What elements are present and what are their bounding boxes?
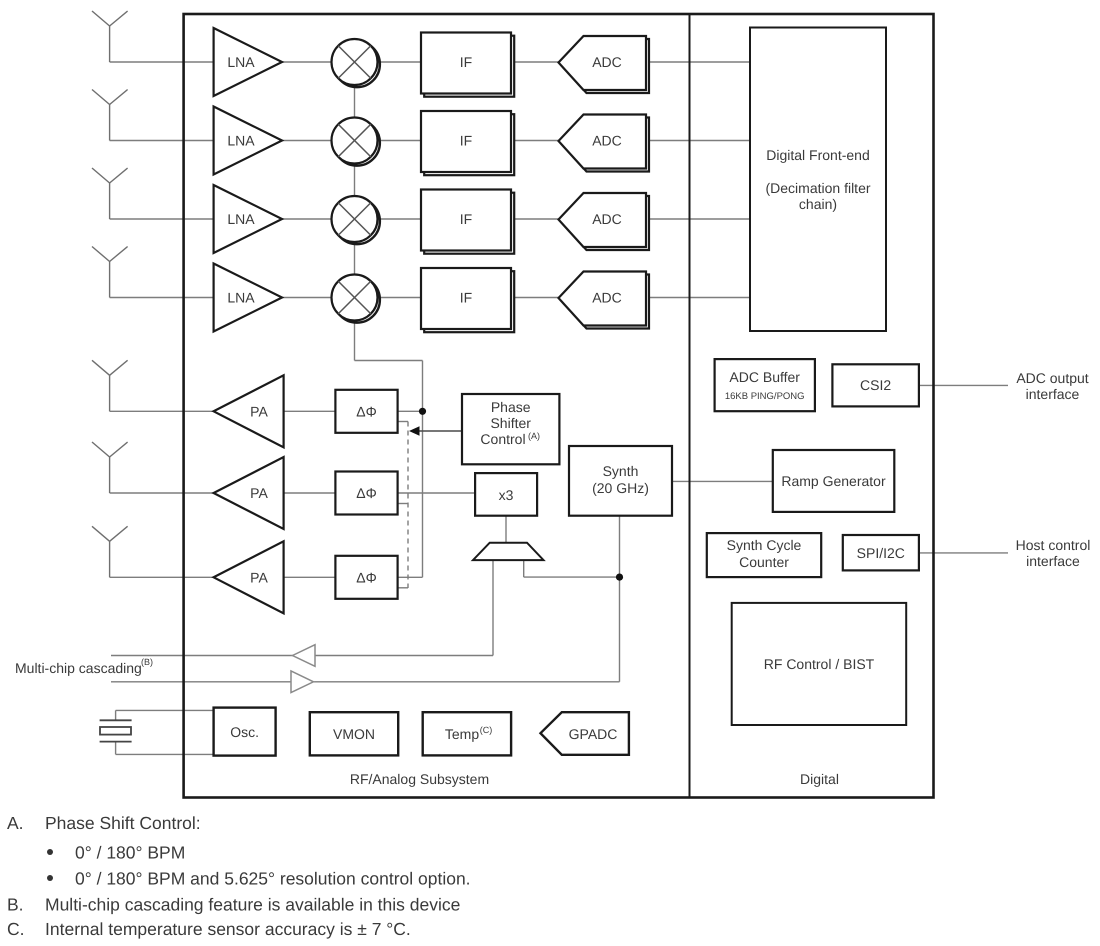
svg-text:IF: IF: [460, 290, 472, 306]
svg-text:A.: A.: [7, 813, 24, 833]
svg-text:SPI/I2C: SPI/I2C: [857, 545, 905, 561]
svg-text:B.: B.: [7, 895, 24, 915]
svg-text:Temp: Temp: [445, 726, 479, 742]
svg-text:PA: PA: [250, 485, 268, 501]
svg-text:IF: IF: [460, 54, 472, 70]
svg-text:ADC Buffer: ADC Buffer: [729, 369, 800, 385]
svg-text:(B): (B): [141, 657, 153, 667]
svg-text:(20 GHz): (20 GHz): [592, 480, 649, 496]
svg-text:ADC output: ADC output: [1016, 370, 1088, 386]
svg-text:C.: C.: [7, 919, 25, 939]
svg-text:LNA: LNA: [227, 211, 255, 227]
svg-text:16KB PING/PONG: 16KB PING/PONG: [725, 391, 805, 402]
svg-text:Digital: Digital: [800, 771, 839, 787]
svg-text:Phase: Phase: [491, 399, 531, 415]
svg-text:Multi-chip cascading: Multi-chip cascading: [15, 660, 142, 676]
svg-text:GPADC: GPADC: [569, 726, 618, 742]
svg-text:x3: x3: [499, 487, 514, 503]
svg-text:CSI2: CSI2: [860, 377, 891, 393]
svg-text:Ramp Generator: Ramp Generator: [781, 473, 886, 489]
svg-text:PA: PA: [250, 569, 268, 585]
svg-text:chain): chain): [799, 196, 837, 212]
svg-text:Osc.: Osc.: [230, 724, 259, 740]
svg-text:interface: interface: [1026, 553, 1080, 569]
svg-text:ADC: ADC: [592, 211, 622, 227]
svg-text:(A): (A): [528, 431, 540, 441]
svg-text:RF Control / BIST: RF Control / BIST: [764, 656, 875, 672]
svg-text:Digital Front-end: Digital Front-end: [766, 147, 870, 163]
svg-text:Control: Control: [480, 431, 525, 447]
svg-text:IF: IF: [460, 211, 472, 227]
svg-text:LNA: LNA: [227, 54, 255, 70]
svg-text:Synth: Synth: [603, 463, 639, 479]
svg-text:(C): (C): [480, 725, 493, 735]
svg-text:Phase Shift Control:: Phase Shift Control:: [45, 813, 201, 833]
svg-text:Synth Cycle: Synth Cycle: [727, 537, 802, 553]
svg-text:ADC: ADC: [592, 54, 622, 70]
svg-text:ΔΦ: ΔΦ: [356, 569, 377, 585]
svg-text:LNA: LNA: [227, 133, 255, 149]
svg-text:0° / 180° BPM: 0° / 180° BPM: [75, 843, 185, 863]
svg-text:interface: interface: [1026, 386, 1080, 402]
svg-text:IF: IF: [460, 133, 472, 149]
svg-text:PA: PA: [250, 403, 268, 419]
svg-text:ΔΦ: ΔΦ: [356, 403, 377, 419]
svg-text:Internal temperature sensor ac: Internal temperature sensor accuracy is …: [45, 919, 411, 939]
svg-text:ADC: ADC: [592, 133, 622, 149]
svg-text:Multi-chip cascading feature i: Multi-chip cascading feature is availabl…: [45, 895, 460, 915]
svg-text:(Decimation filter: (Decimation filter: [765, 180, 870, 196]
svg-text:0° / 180° BPM and 5.625° resol: 0° / 180° BPM and 5.625° resolution cont…: [75, 869, 471, 889]
svg-text:ΔΦ: ΔΦ: [356, 485, 377, 501]
svg-text:Counter: Counter: [739, 554, 789, 570]
svg-text:ADC: ADC: [592, 290, 622, 306]
svg-text:LNA: LNA: [227, 290, 255, 306]
svg-text:Shifter: Shifter: [490, 415, 531, 431]
svg-text:Host control: Host control: [1016, 537, 1091, 553]
svg-text:RF/Analog Subsystem: RF/Analog Subsystem: [350, 771, 489, 787]
svg-text:VMON: VMON: [333, 726, 375, 742]
